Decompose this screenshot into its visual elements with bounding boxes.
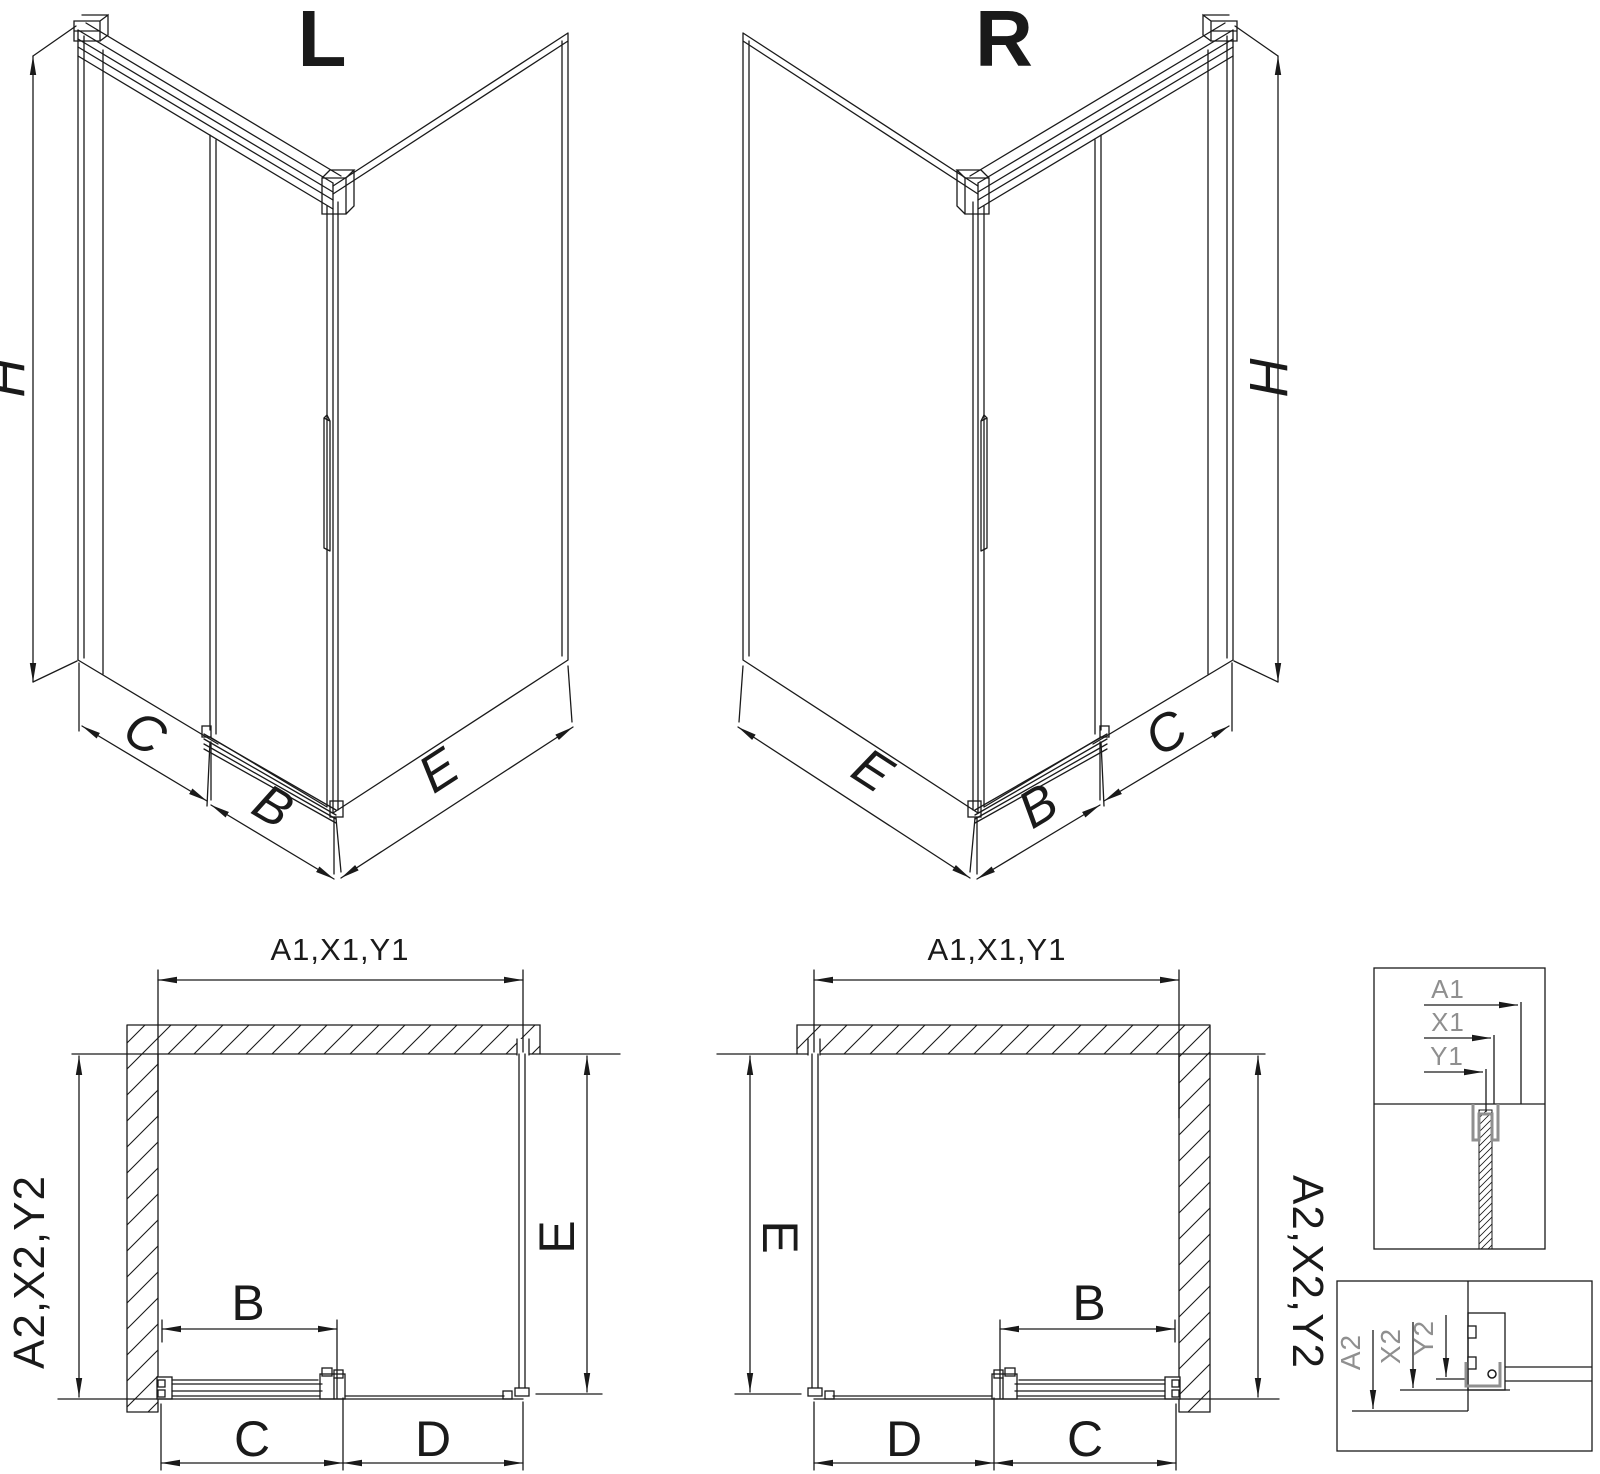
- plan-left-side-dim-label: A2,X2,Y2: [5, 1175, 54, 1369]
- technical-drawing-sheet: L H C B E R H C B E A1,X1,Y1 A2,X2,Y2 E …: [0, 0, 1600, 1474]
- detail-bottom-box: [1337, 1281, 1592, 1451]
- detail-x2-label: X2: [1375, 1328, 1406, 1364]
- iso-right-height-label: H: [1239, 358, 1299, 398]
- plan-left-d-label: D: [415, 1411, 451, 1467]
- plan-right-side-wall-hatch: [1179, 1054, 1210, 1412]
- detail-profile-notch-1: [1468, 1326, 1476, 1338]
- iso-right-drawing: [738, 15, 1278, 879]
- detail-y2-label: Y2: [1408, 1320, 1439, 1356]
- iso-right-title: R: [975, 0, 1033, 83]
- detail-a2-label: A2: [1335, 1334, 1366, 1370]
- iso-left-height-label: H: [0, 358, 36, 398]
- plan-right-d-label: D: [886, 1411, 922, 1467]
- plan-left-side-wall-hatch: [127, 1054, 158, 1412]
- plan-left-e-label: E: [529, 1220, 585, 1253]
- plan-right-side-dim-label: A2,X2,Y2: [1283, 1175, 1332, 1369]
- detail-top-glass-section: [1479, 1110, 1492, 1249]
- plan-right-e-label: E: [752, 1220, 808, 1253]
- plan-left-b-label: B: [231, 1275, 264, 1331]
- labels: L H C B E R H C B E A1,X1,Y1 A2,X2,Y2 E …: [0, 0, 1465, 1467]
- iso-left-fixed-label: C: [114, 699, 176, 768]
- plan-right-top-dim-label: A1,X1,Y1: [928, 932, 1067, 967]
- iso-right-side-label: E: [842, 737, 904, 805]
- detail-profile-notch-2: [1468, 1357, 1476, 1369]
- detail-roller-wheel: [1488, 1370, 1496, 1378]
- drawing-svg: L H C B E R H C B E A1,X1,Y1 A2,X2,Y2 E …: [0, 0, 1600, 1474]
- iso-left-side-label: E: [408, 736, 470, 804]
- plan-left-c-label: C: [234, 1411, 270, 1467]
- detail-y1-label: Y1: [1430, 1041, 1464, 1071]
- wall-hatching: [127, 1025, 1210, 1412]
- plan-left-top-dim-label: A1,X1,Y1: [271, 932, 410, 967]
- iso-right-fixed-label: C: [1135, 699, 1197, 768]
- detail-x1-label: X1: [1431, 1007, 1465, 1037]
- iso-left-drawing: [33, 15, 573, 879]
- iso-left-title: L: [298, 0, 347, 83]
- plan-left-top-wall-hatch: [127, 1025, 540, 1054]
- detail-a1-label: A1: [1431, 974, 1465, 1004]
- plan-right-c-label: C: [1067, 1411, 1103, 1467]
- plan-right-b-label: B: [1072, 1275, 1105, 1331]
- plan-right-top-wall-hatch: [797, 1025, 1210, 1054]
- detail-track-section: [1505, 1367, 1592, 1381]
